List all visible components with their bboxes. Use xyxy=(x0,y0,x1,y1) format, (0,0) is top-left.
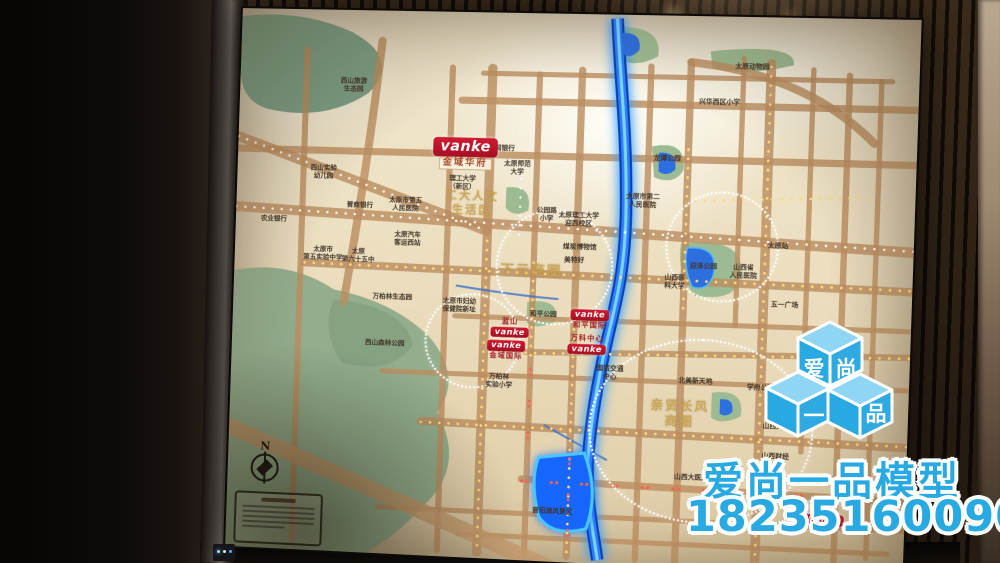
map-label: 西山实验 幼儿园 xyxy=(310,164,337,180)
map-label: 太原汽车 客运西站 xyxy=(394,231,421,248)
map-label: 山西财经 大学 xyxy=(761,453,789,470)
wall-device xyxy=(213,544,235,561)
photo-of-illuminated-city-map-board: 西山旅游 生态园兴华西区小学太原动物园西山实验 幼儿园晋商银行农业银行太原市第五… xyxy=(0,0,1000,563)
vanke-project-name: 金域国际 xyxy=(489,352,522,361)
vanke-logo: vanke xyxy=(778,381,818,394)
map-label: 和平公园 xyxy=(530,310,557,319)
vanke-project-name: 万科中心 xyxy=(570,334,603,343)
map-label: 龙潭公园 xyxy=(653,155,680,164)
map-label: 学府公园 xyxy=(747,384,775,393)
map-label: 国贸交通 中心 xyxy=(596,365,624,382)
map-label: 太原站 xyxy=(768,242,789,251)
map-label: 太原市第二 人民医院 xyxy=(626,193,660,210)
map-label: 山西大学 xyxy=(762,423,790,432)
map-label: 农业银行 xyxy=(261,215,287,224)
map-label: 西山森林公园 xyxy=(365,339,405,348)
vanke-marker: 蓝山vanke xyxy=(490,317,529,338)
vanke-logo: vanke xyxy=(804,514,844,527)
map-label: 五一广场 xyxy=(771,301,799,310)
gold-district-label: 工大人文 生活区 xyxy=(445,188,499,217)
vanke-logo: vanke xyxy=(433,137,498,158)
side-wall-edge xyxy=(978,0,1000,563)
vanke-logo: vanke xyxy=(567,343,606,355)
map-label: 西山旅游 生态园 xyxy=(340,77,367,93)
map-board: 西山旅游 生态园兴华西区小学太原动物园西山实验 幼儿园晋商银行农业银行太原市第五… xyxy=(223,6,924,563)
legend-box xyxy=(233,490,323,546)
map-label: 煤炭博物馆 xyxy=(563,243,597,252)
vanke-project-name: 和平国际 xyxy=(573,321,606,330)
vanke-project-name: 蓝山 xyxy=(502,318,519,326)
gold-district-label: 亲贤长风 商圈 xyxy=(650,398,710,431)
map-label: 美特好 xyxy=(564,257,584,266)
map-label: 太原理工大学 迎西校区 xyxy=(558,212,599,229)
map-label: 太原市 第五实验中学 xyxy=(303,245,343,262)
map-label: 太原动物园 xyxy=(735,63,770,72)
vanke-marker: vanke xyxy=(804,514,844,527)
map-label: 北美新天地 xyxy=(678,377,712,386)
vanke-marker: vanke xyxy=(778,381,818,394)
map-label: 北营车站 xyxy=(807,476,835,485)
compass-rose: N xyxy=(249,439,280,482)
vanke-marker: vanke金域华府 xyxy=(433,137,499,171)
map-label: 山西省 人民医院 xyxy=(729,264,757,281)
map-label: 万柏林 实验小学 xyxy=(485,373,512,390)
map-label: 迎泽公园 xyxy=(690,263,718,272)
map-label: 太原师范 大学 xyxy=(504,160,531,177)
vanke-project-name: 金域华府 xyxy=(438,158,492,171)
vanke-marker: vanke金域国际 xyxy=(487,340,526,361)
vanke-logo: vanke xyxy=(490,326,529,338)
map-label: 万柏林生态园 xyxy=(372,293,412,302)
map-label: 太原市妇幼 保健院新址 xyxy=(442,297,476,314)
dark-side-wall xyxy=(0,0,212,563)
map-label: 太原市第五 人民医院 xyxy=(389,197,423,214)
gold-district-label: 下元商圈 xyxy=(500,262,562,281)
vanke-marker: vanke和平国际 xyxy=(570,309,609,330)
map-annotations: 西山旅游 生态园兴华西区小学太原动物园西山实验 幼儿园晋商银行农业银行太原市第五… xyxy=(225,8,922,563)
map-label: 山西大医院 xyxy=(674,473,708,482)
map-label: 太原 第六十五中 xyxy=(342,248,375,265)
map-label: 晋阳湖风景区 xyxy=(532,507,573,517)
vanke-marker: 万科中心vanke xyxy=(567,334,606,355)
map-label: 晋商银行 xyxy=(347,201,374,210)
map-label: 公园路 小学 xyxy=(536,207,557,223)
map-label: 山西医 科大学 xyxy=(664,274,685,291)
map-label: 兴华西区小学 xyxy=(699,98,740,107)
compass-icon xyxy=(250,453,279,482)
